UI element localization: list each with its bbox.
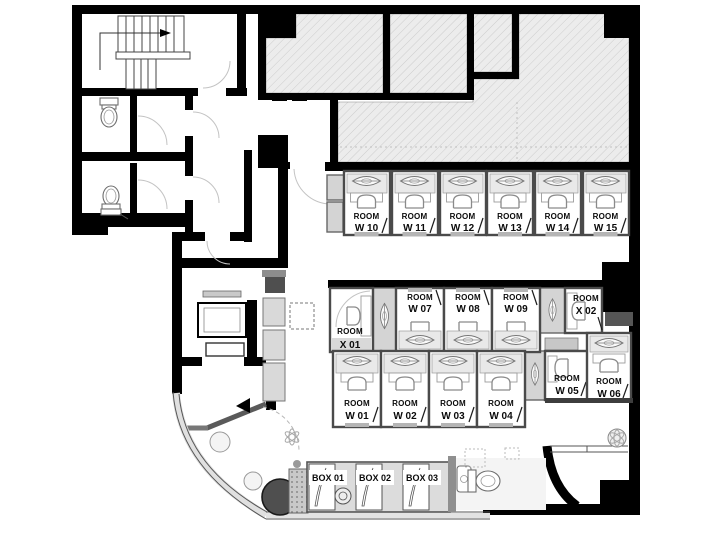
elevator-sill (206, 343, 244, 356)
stool-icon (335, 488, 351, 504)
floorplan-svg: ROOM W 10 ROOM W 11 ROOM W 12 ROOM W 13 (0, 0, 724, 535)
room-label: ROOM (455, 293, 481, 302)
room-x01: ROOM X 01 (330, 288, 373, 352)
room-number: W 05 (555, 386, 579, 397)
room-label: ROOM (440, 399, 466, 408)
room-x02: ROOM X 02 (565, 288, 602, 333)
room-label: ROOM (554, 374, 580, 383)
hatched-service-areas (266, 14, 629, 162)
room-number: W 09 (504, 304, 528, 315)
room-w14: ROOM W 14 (535, 171, 581, 236)
room-number: X 02 (576, 306, 597, 317)
room-w10: ROOM W 10 (344, 171, 390, 236)
room-number: W 02 (393, 411, 417, 422)
room-number: W 03 (441, 411, 465, 422)
box-label: BOX 02 (359, 473, 391, 483)
floor-plan: ROOM W 10 ROOM W 11 ROOM W 12 ROOM W 13 (0, 0, 724, 535)
box-label: BOX 01 (312, 473, 344, 483)
room-w02: ROOM W 02 (381, 351, 429, 427)
room-label: ROOM (392, 399, 418, 408)
room-w03: ROOM W 03 (429, 351, 477, 427)
room-w12: ROOM W 12 (440, 171, 486, 236)
room-w04: ROOM W 04 (477, 351, 525, 427)
room-number: X 01 (340, 340, 361, 351)
room-w11: ROOM W 11 (392, 171, 438, 236)
room-w05: ROOM W 05 (545, 351, 588, 400)
room-w13: ROOM W 13 (487, 171, 533, 236)
room-label: ROOM (344, 399, 370, 408)
toilet-icon (100, 98, 118, 127)
wall-accent (605, 312, 633, 326)
accessible-wc (448, 448, 546, 512)
staircase (100, 16, 190, 89)
room-row-top: ROOM W 10 ROOM W 11 ROOM W 12 ROOM W 13 (344, 171, 629, 236)
room-label: ROOM (593, 212, 619, 221)
room-label: ROOM (545, 212, 571, 221)
room-label: ROOM (337, 327, 363, 336)
room-label: ROOM (488, 399, 514, 408)
door-gap (207, 232, 230, 241)
room-label: ROOM (450, 212, 476, 221)
plant-pot (293, 460, 301, 468)
room-number: W 01 (345, 411, 369, 422)
room-w06: ROOM W 06 (587, 333, 631, 400)
planter-box (289, 469, 308, 513)
room-w08: ROOM W 08 (444, 288, 492, 352)
room-number: W 04 (489, 411, 513, 422)
room-label: ROOM (407, 293, 433, 302)
room-w01: ROOM W 01 (333, 351, 381, 427)
round-table (244, 472, 262, 490)
room-label: ROOM (573, 294, 599, 303)
phone-boxes: BOX 01 BOX 02 BOX 03 (307, 462, 450, 512)
room-w15: ROOM W 15 (583, 171, 629, 236)
room-number: W 08 (456, 304, 480, 315)
floor-marking (290, 303, 314, 329)
plant-icon (608, 429, 626, 447)
room-number: W 07 (408, 304, 432, 315)
plant-icon (284, 429, 301, 445)
room-label: ROOM (596, 377, 622, 386)
room-label: ROOM (503, 293, 529, 302)
round-table (210, 432, 230, 452)
right-corridor (550, 429, 628, 452)
elevator-door (203, 291, 241, 297)
room-label: ROOM (354, 212, 380, 221)
room-label: ROOM (402, 212, 428, 221)
curved-wall (547, 446, 577, 506)
room-w07: ROOM W 07 (396, 288, 444, 352)
box-label: BOX 03 (406, 473, 438, 483)
toilet-icon (468, 470, 500, 492)
entrance-area (184, 398, 299, 451)
room-w09: ROOM W 09 (492, 288, 540, 352)
room-label: ROOM (497, 212, 523, 221)
